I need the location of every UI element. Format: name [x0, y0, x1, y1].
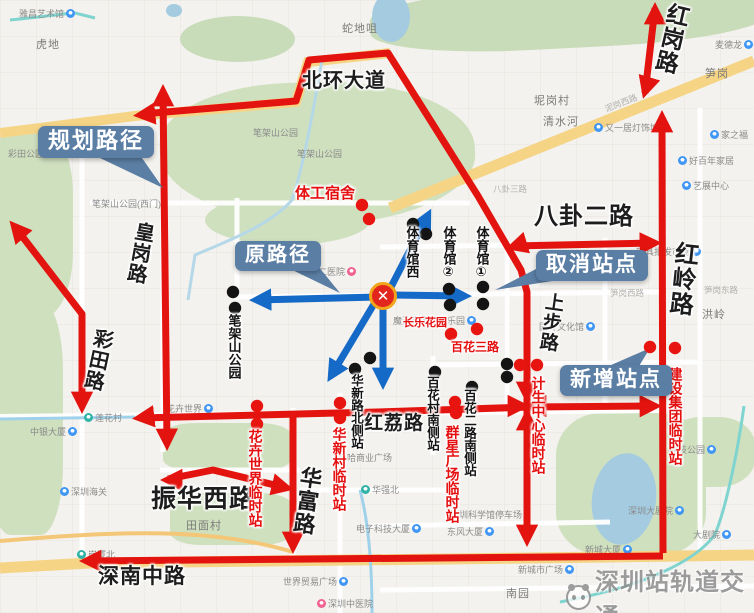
station-label: 体工宿舍	[295, 186, 355, 202]
callout-cancelled-stations: 取消站点	[536, 250, 648, 281]
station-label: 体育馆①	[475, 226, 489, 280]
station-label: 群星广场临时站	[445, 425, 460, 523]
station-label: 体育馆②	[442, 226, 456, 280]
station-label: 长乐花园	[403, 318, 447, 329]
panda-logo-icon	[566, 585, 591, 610]
callout-added-stations: 新增站点	[560, 365, 672, 396]
station-label: 计生中心临时站	[531, 376, 546, 474]
closure-x-marker: ✕	[369, 282, 397, 310]
station-label: 华新村临时站	[332, 427, 347, 511]
station-label: 花卉世界临时站	[248, 429, 263, 527]
annotated-route-map: 雅昌艺术馆虎地彩田公园笔架山公园(西门)笔架山公园笔架山公园蛇地咀坭岗村清水河又…	[0, 0, 754, 613]
station-label: 百花二路南侧站	[462, 389, 475, 477]
callout-original-route: 原路径	[235, 241, 321, 271]
watermark: 深圳站轨道交通	[566, 562, 754, 613]
watermark-text: 深圳站轨道交通	[595, 562, 754, 613]
station-label: 体育馆西	[405, 226, 419, 278]
station-label: 华新路北侧站	[349, 374, 362, 449]
station-label: 百花村南侧站	[425, 376, 438, 451]
callout-planned-route: 规划路径	[38, 126, 154, 158]
station-label: 百花三路	[451, 341, 499, 353]
station-label: 笔架山公园	[227, 314, 241, 379]
